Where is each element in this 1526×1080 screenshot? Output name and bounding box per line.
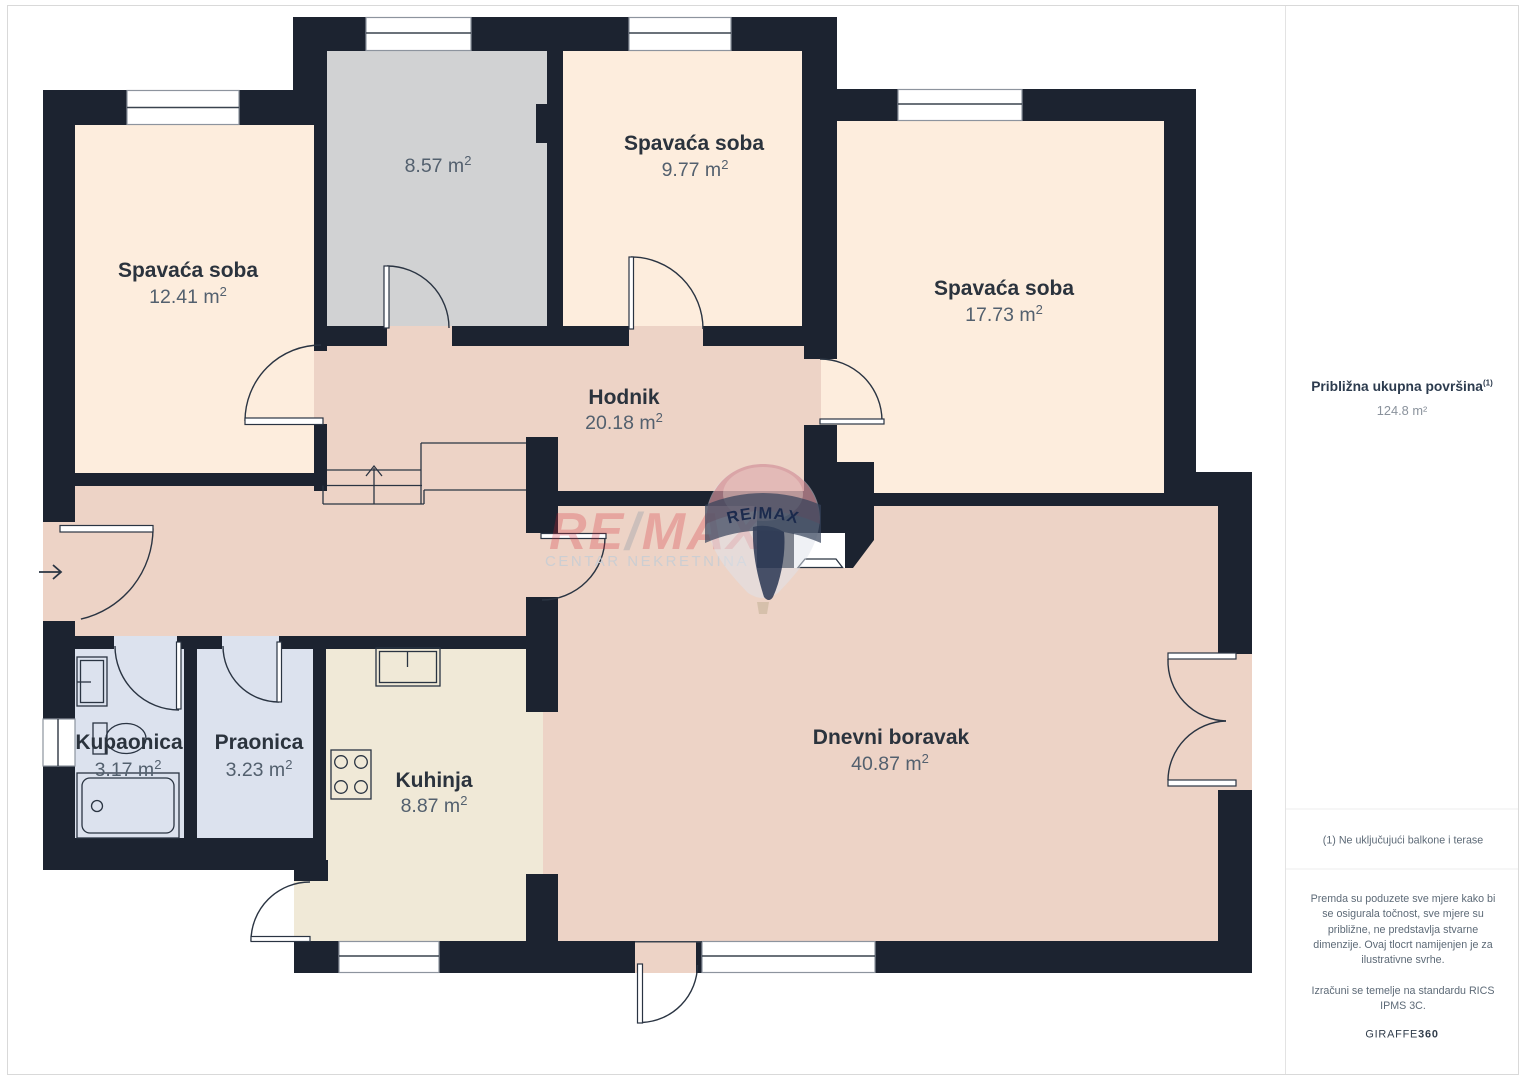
svg-text:Hodnik: Hodnik bbox=[588, 386, 659, 409]
svg-text:ilustrativne svrhe.: ilustrativne svrhe. bbox=[1361, 954, 1444, 966]
svg-text:17.73 m2: 17.73 m2 bbox=[965, 302, 1043, 326]
svg-text:124.8 m²: 124.8 m² bbox=[1377, 403, 1428, 418]
svg-text:3.17 m2: 3.17 m2 bbox=[95, 757, 162, 781]
svg-text:20.18 m2: 20.18 m2 bbox=[585, 410, 663, 434]
svg-text:Spavaća soba: Spavaća soba bbox=[118, 259, 258, 282]
svg-text:Praonica: Praonica bbox=[215, 731, 304, 754]
svg-text:IPMS 3C.: IPMS 3C. bbox=[1380, 1000, 1426, 1012]
svg-text:9.77 m2: 9.77 m2 bbox=[662, 157, 729, 181]
svg-text:Izračuni se temelje na standar: Izračuni se temelje na standardu RICS bbox=[1312, 985, 1495, 997]
svg-text:8.87 m2: 8.87 m2 bbox=[401, 793, 468, 817]
svg-text:Premda su poduzete sve mjere k: Premda su poduzete sve mjere kako bi bbox=[1311, 893, 1496, 905]
svg-text:dimenzije. Ovaj tlocrt namijen: dimenzije. Ovaj tlocrt namijenjen je za bbox=[1313, 939, 1492, 951]
svg-text:Kuhinja: Kuhinja bbox=[396, 769, 473, 792]
svg-text:Dnevni boravak: Dnevni boravak bbox=[813, 726, 970, 749]
svg-text:GIRAFFE360: GIRAFFE360 bbox=[1365, 1029, 1438, 1041]
svg-text:12.41 m2: 12.41 m2 bbox=[149, 284, 227, 308]
svg-text:8.57 m2: 8.57 m2 bbox=[405, 153, 472, 177]
svg-text:Spavaća soba: Spavaća soba bbox=[624, 132, 764, 155]
svg-text:Kupaonica: Kupaonica bbox=[75, 731, 183, 754]
svg-text:Spavaća soba: Spavaća soba bbox=[934, 277, 1074, 300]
svg-text:približne, ne predstavlja stva: približne, ne predstavlja stvarne bbox=[1328, 924, 1478, 936]
svg-text:40.87 m2: 40.87 m2 bbox=[851, 751, 929, 775]
svg-text:Približna ukupna površina(1): Približna ukupna površina(1) bbox=[1311, 379, 1493, 395]
svg-text:(1) Ne uključujući balkone i t: (1) Ne uključujući balkone i terase bbox=[1323, 835, 1483, 847]
svg-text:3.23 m2: 3.23 m2 bbox=[226, 757, 293, 781]
svg-text:se osigurala točnost, sve mjer: se osigurala točnost, sve mjere su bbox=[1322, 908, 1484, 920]
